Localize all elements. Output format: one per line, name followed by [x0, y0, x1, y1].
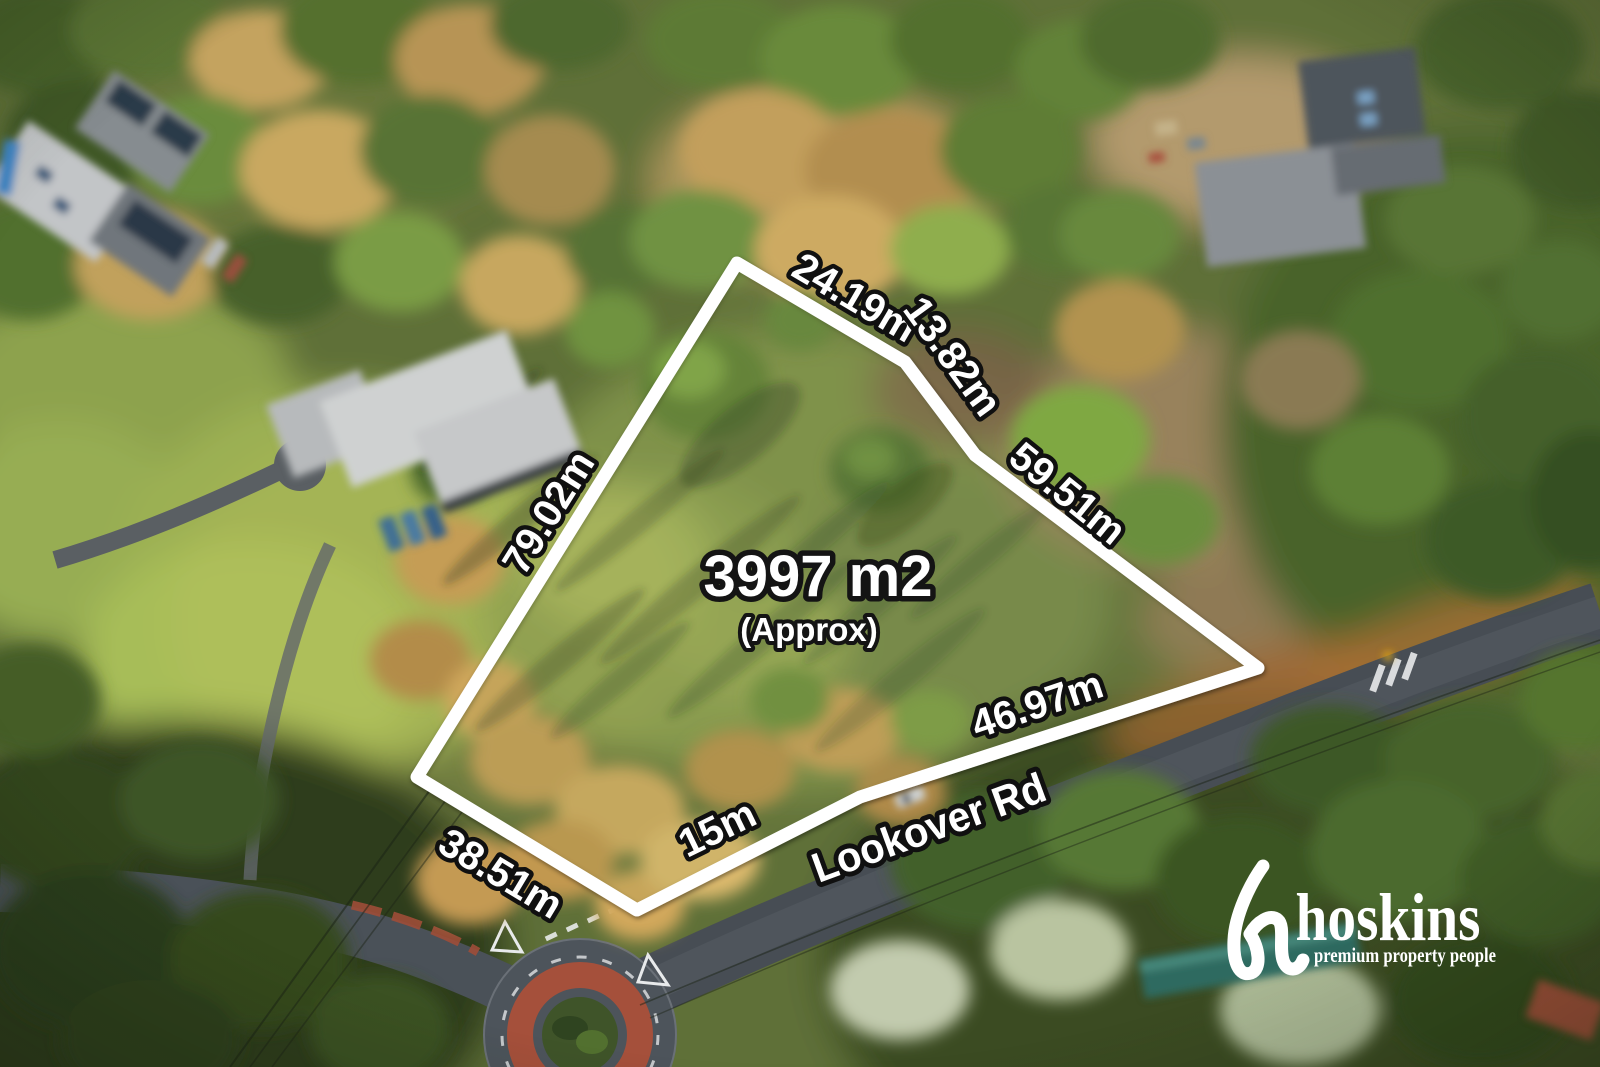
area-qualifier: (Approx)	[740, 611, 877, 648]
aerial-photo: 24.19m 13.82m 59.51m 46.97m 15m 38.51m 7…	[0, 0, 1600, 1067]
area-value: 3997 m2	[704, 544, 933, 609]
property-listing-aerial-image: 24.19m 13.82m 59.51m 46.97m 15m 38.51m 7…	[0, 0, 1600, 1067]
hoskins-logo-tagline: premium property people	[1314, 943, 1496, 967]
